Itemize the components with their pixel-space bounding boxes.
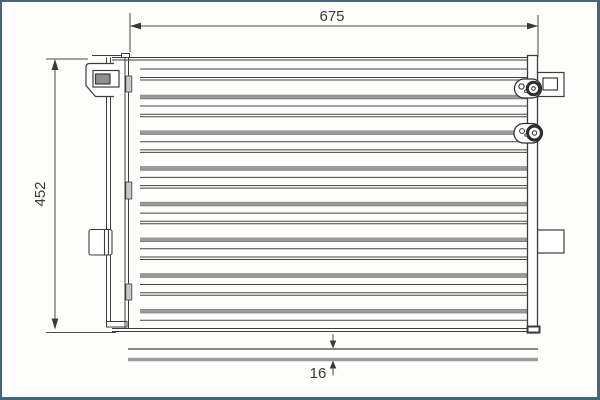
right-bracket-mid xyxy=(538,230,565,253)
dim-height xyxy=(46,59,116,333)
dim-height-label: 452 xyxy=(32,181,49,206)
header-tab xyxy=(126,76,132,92)
left-bracket-bottom xyxy=(89,230,112,256)
header-top-step xyxy=(122,54,130,58)
condenser-drawing: 675 452 xyxy=(0,0,600,400)
dim-width-label: 675 xyxy=(319,8,344,25)
left-plate-foot xyxy=(107,322,128,328)
outlet-pin-hole xyxy=(520,129,525,134)
dim-height-arrow-top xyxy=(52,59,59,70)
core-header-left xyxy=(125,58,132,329)
dim-depth xyxy=(330,334,337,376)
inlet-pin-hole xyxy=(519,84,524,89)
header-tab xyxy=(126,284,132,300)
side-view xyxy=(128,349,538,360)
outlet-fitting xyxy=(514,124,542,144)
left-bracket-slot-hole xyxy=(96,74,111,84)
right-tank-foot xyxy=(528,327,540,333)
header-tab xyxy=(126,182,132,199)
dim-depth-label: 16 xyxy=(310,365,327,382)
dim-height-arrow-bottom xyxy=(52,319,59,330)
dim-width-arrow-right xyxy=(527,23,538,30)
core-tubes xyxy=(140,69,528,320)
drawing-page: 675 452 xyxy=(0,0,600,400)
inlet-fitting xyxy=(515,79,542,98)
left-bracket-top xyxy=(86,64,119,97)
dim-depth-arrow-top xyxy=(330,341,337,349)
dim-width-arrow-left xyxy=(130,23,141,30)
right-bracket-top xyxy=(538,73,565,97)
